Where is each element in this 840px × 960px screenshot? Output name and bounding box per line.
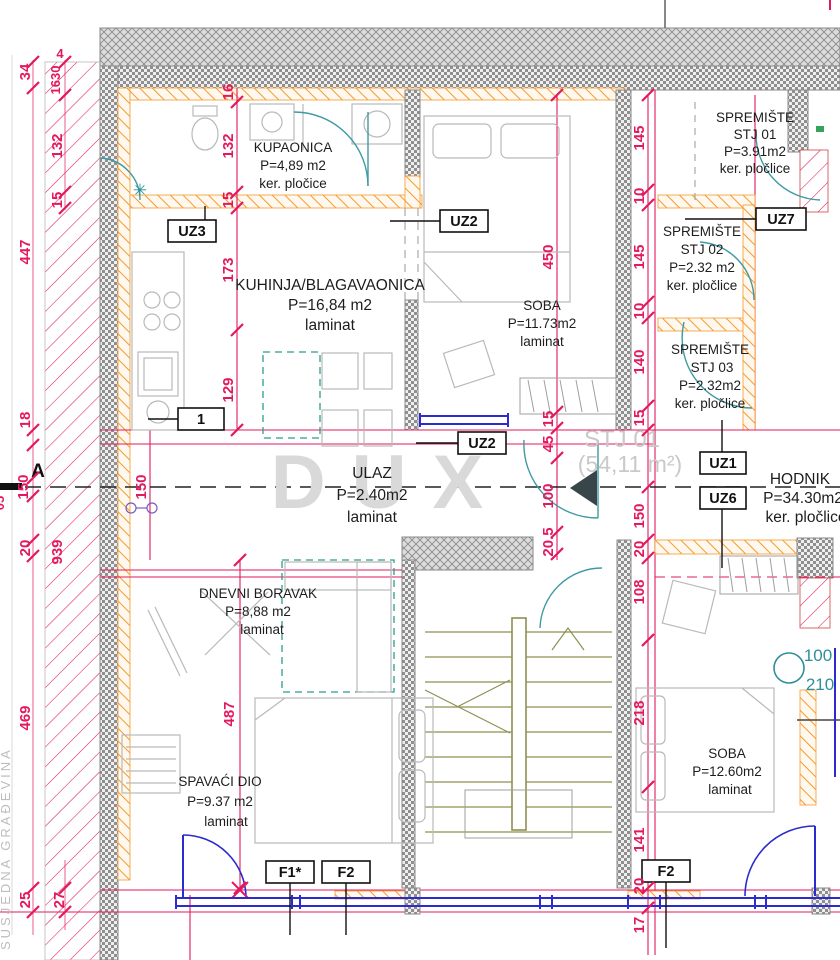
- svg-text:1630: 1630: [48, 66, 63, 95]
- svg-text:45: 45: [540, 436, 557, 453]
- svg-text:P=11.73m2: P=11.73m2: [508, 316, 576, 331]
- floor-plan-canvas: A: [0, 0, 840, 960]
- svg-text:469: 469: [17, 705, 34, 730]
- svg-text:100: 100: [540, 483, 557, 508]
- svg-text:SPAVAĆI DIO: SPAVAĆI DIO: [178, 774, 261, 789]
- tag-uz6: UZ6: [709, 491, 736, 507]
- svg-text:laminat: laminat: [240, 622, 284, 637]
- room-dnevni-boravak: DNEVNI BORAVAK P=8,88 m2 laminat: [199, 586, 317, 637]
- electrical-symbols: [126, 503, 157, 513]
- tag-uz7: UZ7: [767, 212, 794, 228]
- svg-text:KUPAONICA: KUPAONICA: [254, 140, 333, 155]
- tag-uz1: UZ1: [709, 456, 736, 472]
- tag-f2-right: F2: [658, 864, 675, 880]
- svg-text:laminat: laminat: [204, 814, 248, 829]
- svg-text:P=8,88 m2: P=8,88 m2: [225, 604, 291, 619]
- svg-text:SPREMIŠTE: SPREMIŠTE: [663, 224, 741, 239]
- svg-text:P=34.30m2: P=34.30m2: [763, 490, 840, 507]
- room-soba-1: SOBA P=11.73m2 laminat: [508, 298, 576, 349]
- svg-text:laminat: laminat: [520, 334, 564, 349]
- svg-text:05: 05: [0, 496, 7, 510]
- room-soba-2: SOBA P=12.60m2 laminat: [692, 746, 761, 797]
- svg-text:ker. pločlice: ker. pločlice: [675, 396, 746, 411]
- svg-text:P=9.37 m2: P=9.37 m2: [187, 794, 253, 809]
- svg-text:SPREMIŠTE: SPREMIŠTE: [671, 342, 749, 357]
- watermark-area: (54,11 m²): [578, 451, 682, 477]
- door-height: 210: [806, 675, 834, 694]
- svg-text:SOBA: SOBA: [708, 746, 746, 761]
- svg-text:STJ 01: STJ 01: [734, 127, 777, 142]
- svg-text:P=2.32m2: P=2.32m2: [679, 378, 741, 393]
- svg-text:141: 141: [631, 827, 648, 852]
- svg-text:20.5: 20.5: [540, 527, 557, 556]
- svg-text:STJ 02: STJ 02: [681, 242, 724, 257]
- staircase: [425, 618, 612, 838]
- svg-text:P=16,84 m2: P=16,84 m2: [288, 297, 372, 314]
- svg-text:132: 132: [220, 133, 237, 158]
- svg-text:STJ 03: STJ 03: [691, 360, 734, 375]
- neighbor-building-label: SUSJEDNA GRAĐEVINA: [0, 747, 13, 950]
- svg-text:ker. pločlice: ker. pločlice: [667, 278, 738, 293]
- svg-text:laminat: laminat: [708, 782, 752, 797]
- room-spavaci-dio: SPAVAĆI DIO P=9.37 m2 laminat: [178, 774, 261, 829]
- tag-1: 1: [197, 412, 205, 428]
- svg-text:939: 939: [49, 539, 66, 564]
- door-width: 100: [804, 646, 832, 665]
- svg-text:487: 487: [221, 701, 238, 726]
- svg-text:P=12.60m2: P=12.60m2: [692, 764, 761, 779]
- svg-text:450: 450: [540, 244, 557, 269]
- svg-text:DNEVNI BORAVAK: DNEVNI BORAVAK: [199, 586, 317, 601]
- svg-text:145: 145: [631, 125, 648, 150]
- svg-text:150: 150: [631, 503, 648, 528]
- svg-text:4: 4: [56, 46, 64, 61]
- svg-text:173: 173: [220, 257, 237, 282]
- room-kuhinja: KUHINJA/BLAGAVAONICA P=16,84 m2 laminat: [235, 277, 425, 334]
- svg-text:145: 145: [631, 244, 648, 269]
- tag-f1: F1*: [279, 865, 302, 881]
- tag-uz3: UZ3: [178, 224, 205, 240]
- svg-text:ker. pločlice: ker. pločlice: [766, 509, 840, 526]
- svg-text:ker. pločice: ker. pločice: [259, 176, 327, 191]
- floor-plan-drawing: A: [0, 0, 840, 960]
- svg-text:447: 447: [17, 239, 34, 264]
- room-spremiste-stj02: SPREMIŠTE STJ 02 P=2.32 m2 ker. pločlice: [663, 224, 741, 293]
- svg-text:140: 140: [631, 349, 648, 374]
- svg-text:P=4,89 m2: P=4,89 m2: [260, 158, 326, 173]
- svg-text:SOBA: SOBA: [523, 298, 561, 313]
- svg-text:P=2.40m2: P=2.40m2: [336, 487, 407, 504]
- room-kupaonica: KUPAONICA P=4,89 m2 ker. pločice: [254, 140, 333, 191]
- tag-uz2-top: UZ2: [450, 214, 477, 230]
- drain-symbol: ✳: [133, 181, 147, 200]
- tag-f2-left: F2: [338, 865, 355, 881]
- svg-text:18: 18: [17, 412, 34, 429]
- svg-text:SPREMIŠTE: SPREMIŠTE: [716, 110, 794, 125]
- svg-text:17: 17: [631, 917, 648, 934]
- svg-text:150: 150: [133, 474, 150, 499]
- svg-text:P=2.32 m2: P=2.32 m2: [669, 260, 735, 275]
- svg-text:ker. pločlice: ker. pločlice: [720, 161, 791, 176]
- tag-uz2-mid: UZ2: [468, 436, 495, 452]
- svg-text:25: 25: [17, 892, 34, 909]
- svg-text:HODNIK: HODNIK: [770, 471, 831, 488]
- svg-text:16: 16: [220, 84, 237, 101]
- svg-text:108: 108: [631, 579, 648, 604]
- room-hodnik: HODNIK P=34.30m2 ker. pločlice: [763, 471, 840, 526]
- svg-text:34: 34: [17, 63, 34, 80]
- svg-text:150: 150: [15, 474, 32, 499]
- door-size-annotation: 100 210: [774, 646, 834, 694]
- svg-text:laminat: laminat: [305, 317, 356, 334]
- svg-text:15: 15: [631, 410, 648, 427]
- svg-text:P=3.91m2: P=3.91m2: [724, 144, 786, 159]
- room-spremiste-stj03: SPREMIŠTE STJ 03 P=2.32m2 ker. pločlice: [671, 342, 749, 411]
- svg-text:KUHINJA/BLAGAVAONICA: KUHINJA/BLAGAVAONICA: [235, 277, 425, 294]
- svg-text:132: 132: [49, 133, 66, 158]
- svg-text:129: 129: [220, 377, 237, 402]
- svg-text:218: 218: [631, 700, 648, 725]
- svg-text:laminat: laminat: [347, 509, 398, 526]
- svg-text:ULAZ: ULAZ: [352, 465, 392, 482]
- svg-text:10: 10: [631, 188, 648, 205]
